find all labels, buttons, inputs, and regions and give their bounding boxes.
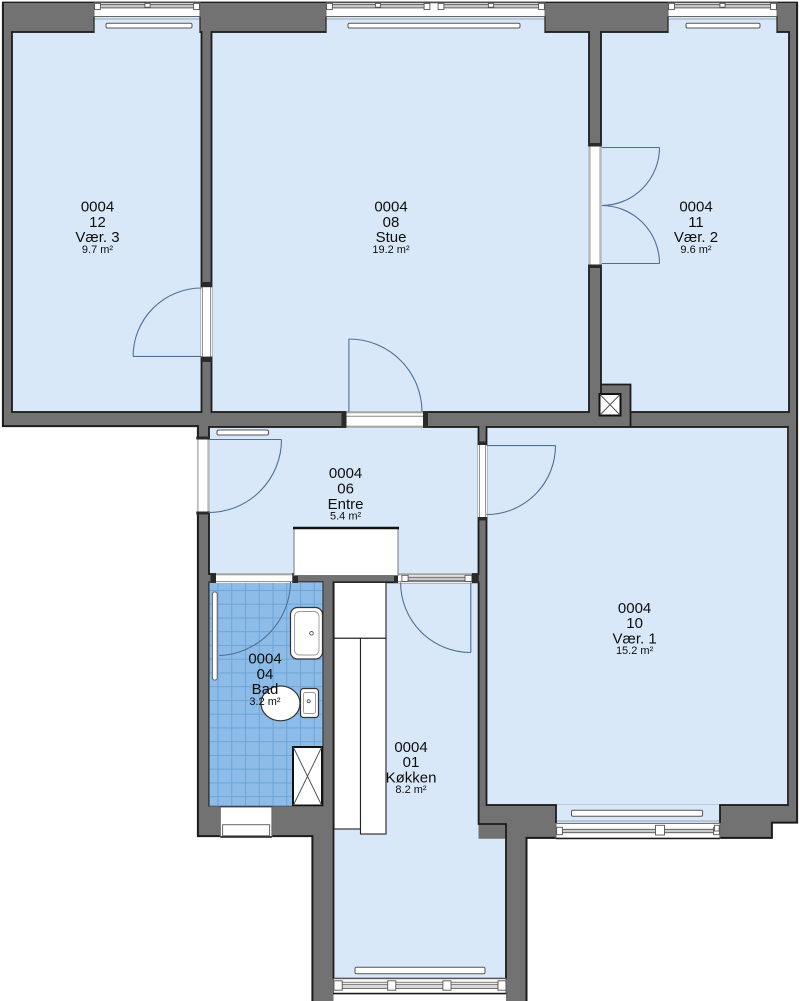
svg-text:19.2 m²: 19.2 m² — [372, 244, 410, 256]
svg-text:3.2 m²: 3.2 m² — [249, 696, 281, 708]
svg-text:15.2 m²: 15.2 m² — [616, 645, 654, 657]
svg-text:9.7 m²: 9.7 m² — [82, 244, 114, 256]
svg-text:9.6 m²: 9.6 m² — [680, 244, 712, 256]
svg-text:5.4 m²: 5.4 m² — [330, 511, 362, 523]
svg-text:8.2 m²: 8.2 m² — [395, 784, 427, 796]
